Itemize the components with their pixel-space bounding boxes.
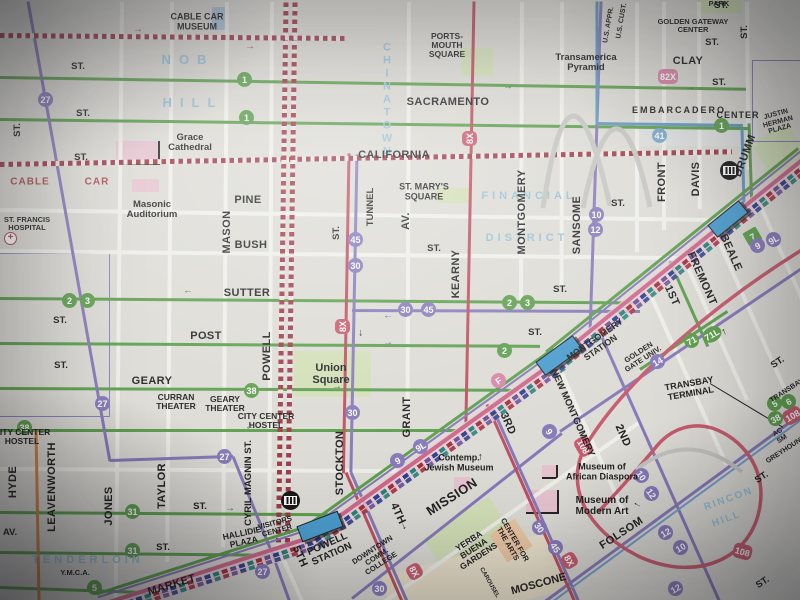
street-label-st-20: AV. <box>3 528 17 538</box>
route-badge-1: 1 <box>237 72 252 87</box>
route-badge-41: 41 <box>652 128 667 143</box>
cable-car-glyph <box>723 166 736 175</box>
street-label-taylor: TAYLOR <box>157 463 169 509</box>
street-label-st-5: ST. <box>193 502 207 512</box>
poi-label-museum-of-modern-art: Museum of Modern Art <box>576 496 629 518</box>
poi-label-y-m-c-a: Y.M.C.A. <box>60 569 90 577</box>
street-label-leavenworth: LEAVENWORTH <box>47 442 59 532</box>
street-label-st-6: ST. <box>156 543 170 553</box>
street-label-kearny: KEARNY <box>451 250 463 299</box>
street-label-st-8: ST. <box>705 38 719 48</box>
one-way-arrow-10: → <box>245 42 255 52</box>
route-badge-30: 30 <box>345 405 360 420</box>
route-badge-8x: 8X <box>335 319 350 334</box>
route-badge-10: 10 <box>589 207 604 222</box>
cable-car-terminal-icon-1 <box>720 161 739 180</box>
street-label-montgomery: MONTGOMERY <box>517 170 529 255</box>
street-label-powell: POWELL <box>262 331 274 380</box>
one-way-arrow-1: → <box>685 83 695 93</box>
street-label-sacramento: SACRAMENTO <box>407 97 490 109</box>
poi-label-cable: CABLE <box>10 178 49 189</box>
street-label-davis: DAVIS <box>691 162 703 197</box>
street-label-sutter: SUTTER <box>224 288 270 300</box>
poi-label-grace-cathedral: Grace Cathedral <box>168 133 212 154</box>
route-badge-45: 45 <box>421 302 436 317</box>
street-label-st-10: ST. <box>740 25 750 39</box>
street-label-sansome: SANSOME <box>572 196 584 254</box>
route-badge-27: 27 <box>38 92 53 107</box>
one-way-arrow-11: → <box>356 328 366 338</box>
poi-label-car: CAR <box>85 178 110 189</box>
one-way-arrow-4: → <box>332 382 342 392</box>
street-label-mason: MASON <box>222 211 234 254</box>
route-badge-1: 1 <box>239 110 254 125</box>
street-label-st-9: ST. <box>712 78 726 88</box>
poi-label-embarcadero: EMBARCADERO <box>632 106 726 116</box>
street-label-pine: PINE <box>234 195 261 207</box>
street-label-st-13: ST. <box>553 285 567 295</box>
poi-label-curran-theater: CURRAN THEATER <box>156 393 196 411</box>
street-label-geary: GEARY <box>132 376 173 388</box>
street-label-st-15: ST. <box>528 328 542 338</box>
street-label-st-19: ST. <box>13 123 23 137</box>
street-label-grant: GRANT <box>402 396 414 437</box>
route-badge-38: 38 <box>244 383 259 398</box>
route-badge-30: 30 <box>348 258 363 273</box>
poi-label-transamerica-pyramid: Transamerica Pyramid <box>555 53 616 74</box>
route-badge-82x: 82X <box>658 69 678 84</box>
poi-label-st-mary-s-square: ST. MARY'S SQUARE <box>399 182 449 201</box>
poi-label-union-square: Union Square <box>312 363 349 387</box>
route-badge-45: 45 <box>348 232 363 247</box>
one-way-arrow-0: → <box>503 82 513 92</box>
poi-label-center: CENTER <box>716 111 759 121</box>
one-way-arrow-3: → <box>200 332 210 342</box>
poi-label-cable-car-museum: CABLE CAR MUSEUM <box>171 12 224 31</box>
street-label-st-0: ST. <box>71 62 85 72</box>
street-label-clay: CLAY <box>673 56 704 68</box>
street-label-st-2: ST. <box>74 153 88 163</box>
transit-map: 111232323838313157171L756381082727272745… <box>0 0 800 600</box>
route-badge-27: 27 <box>95 396 110 411</box>
route-badge-3: 3 <box>80 293 95 308</box>
route-badge-27: 27 <box>217 449 232 464</box>
route-badge-2: 2 <box>497 343 512 358</box>
street-label-california: CALIFORNIA <box>358 150 430 162</box>
cable-car-terminal-icon-0 <box>281 491 300 510</box>
street-label-tunnel: TUNNEL <box>366 188 376 227</box>
one-way-arrow-5: → <box>245 423 255 433</box>
street-label-av: AV. <box>401 212 413 230</box>
route-badge-30: 30 <box>398 302 413 317</box>
one-way-arrow-2: → <box>183 287 193 297</box>
one-way-arrow-13: → <box>475 452 485 462</box>
route-badge-27: 27 <box>255 564 270 579</box>
street-label-st-3: ST. <box>53 316 67 326</box>
route-badge-3: 3 <box>520 295 535 310</box>
route-badge-30: 30 <box>372 581 387 596</box>
street-label-st-12: ST. <box>332 226 342 240</box>
street-label-cyril-magnin-st: CYRIL MAGNIN ST. <box>244 440 254 526</box>
photo-of-transit-map: 111232323838313157171L756381082727272745… <box>0 0 800 600</box>
street-label-st-11: ST. <box>427 244 441 254</box>
street-label-st-4: ST. <box>54 361 68 371</box>
poi-label-golden-gateway-center: GOLDEN GATEWAY CENTER <box>658 18 729 34</box>
neighborhood-financial: FINANCIAL <box>481 191 576 203</box>
hospital-cross-icon: + <box>4 232 17 245</box>
route-badge-8x: 8X <box>462 131 477 146</box>
street-label-st-14: ST. <box>611 199 625 209</box>
route-badge-2: 2 <box>62 293 77 308</box>
street-label-hyde: HYDE <box>8 466 20 498</box>
route-badge-5: 5 <box>87 580 102 595</box>
street-label-front: FRONT <box>657 162 669 202</box>
one-way-arrow-9: → <box>133 25 143 35</box>
one-way-arrow-7: → <box>383 312 393 322</box>
street-label-stockton: STOCKTON <box>335 431 347 496</box>
poi-label-park: PARK <box>709 0 730 8</box>
one-way-arrow-6: → <box>225 504 235 514</box>
route-badge-12: 12 <box>588 222 603 237</box>
route-badge-31: 31 <box>125 504 140 519</box>
street-label-jones: JONES <box>104 486 116 525</box>
street-label-st-1: ST. <box>76 109 90 119</box>
neighborhood-chinatown: CHINATOWN <box>380 42 392 159</box>
poi-label-ports-mouth-square: PORTS- MOUTH SQUARE <box>429 32 465 60</box>
neighborhood-nob: NOB <box>162 53 215 67</box>
neighborhood-tenderloin: TENDERLOIN <box>32 555 144 567</box>
poi-label-city-center-hostel: CITY CENTER HOSTEL <box>0 428 50 446</box>
cable-car-glyph <box>284 496 297 505</box>
street-label-bush: BUSH <box>235 240 268 252</box>
route-badge-2: 2 <box>502 295 517 310</box>
route-108-loop <box>577 248 800 567</box>
one-way-arrow-8: → <box>383 338 393 348</box>
poi-label-masonic-auditorium: Masonic Auditorium <box>127 200 178 221</box>
poi-label-museum-of-african-diaspora: Museum of African Diaspora <box>566 462 638 481</box>
neighborhood-hill: HILL <box>163 96 224 110</box>
poi-label-st-francis-hospital: ST. FRANCIS HOSPITAL <box>4 216 50 232</box>
